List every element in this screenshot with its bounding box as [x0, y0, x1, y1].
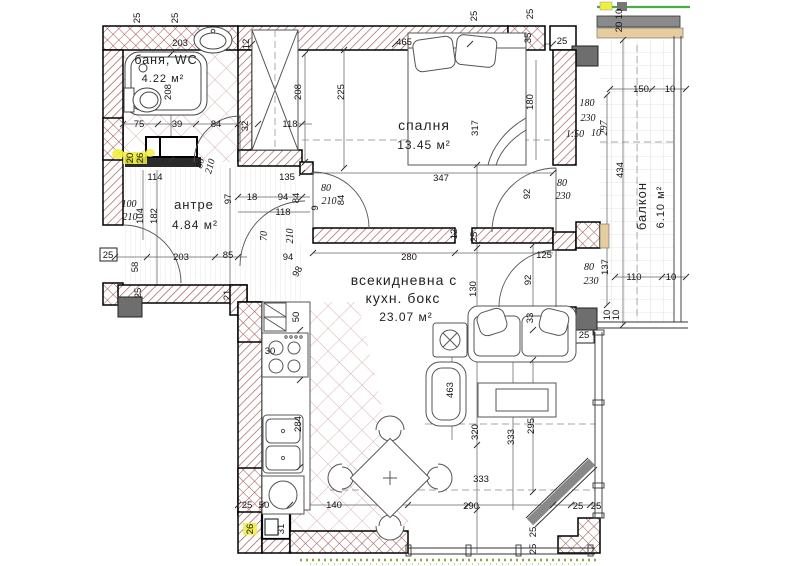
- dimension-label: 230: [556, 191, 571, 202]
- dimension-label: 94: [283, 252, 294, 263]
- dimension-label: 84: [291, 193, 302, 204]
- parapet-top-tan: [597, 28, 683, 38]
- hallway-label: антре: [174, 197, 214, 212]
- dimension-label: 180: [525, 94, 536, 110]
- dimension-label: 320: [470, 424, 481, 440]
- dimension-label: 295: [526, 418, 537, 434]
- bedroom-area: 13.45 м²: [397, 138, 451, 152]
- dimension-label: 10: [614, 9, 625, 20]
- dimension-label: 434: [615, 162, 626, 178]
- pillow: [412, 35, 456, 72]
- dimension-label: 92: [522, 189, 533, 200]
- dimension-label: 225: [336, 84, 347, 100]
- dimension-label: 84: [336, 195, 347, 206]
- living-area: 23.07 м²: [379, 310, 433, 324]
- dimension-label: 25: [579, 330, 590, 341]
- dimension-label: 118: [275, 207, 290, 218]
- dimension-label: 80: [321, 183, 331, 194]
- dimension-label: 150: [633, 84, 649, 95]
- dimension-label: 32: [240, 121, 251, 132]
- bathroom-label: баня, WC: [134, 53, 197, 67]
- parapet-top-bar: [597, 16, 680, 27]
- dimension-label: 182: [149, 208, 160, 224]
- dimension-label: 25: [573, 501, 584, 512]
- balcony-end-column: [576, 308, 597, 330]
- dimension-label: 208: [293, 84, 304, 100]
- dimension-label: 25: [469, 232, 480, 243]
- dimension-label: 104: [135, 208, 146, 224]
- dimension-label: 463: [445, 382, 456, 398]
- dimension-label: 135: [279, 172, 295, 183]
- dimension-label: 35: [523, 33, 534, 44]
- balcony-area: 6.10 м²: [655, 186, 667, 229]
- exterior-stair: [526, 458, 597, 527]
- dimension-label: 210: [285, 229, 296, 244]
- dimension-label: 125: [536, 250, 552, 261]
- dimension-label: 25: [242, 500, 253, 511]
- hallway-area: 4.84 м²: [172, 218, 218, 232]
- bathroom-area: 4.22 м²: [142, 73, 185, 85]
- dimension-label: 12: [449, 229, 460, 240]
- dimension-label: 25: [133, 288, 144, 299]
- dimension-label: 50: [291, 312, 302, 323]
- dimension-label: 84: [211, 119, 222, 130]
- dimension-label: 31: [276, 524, 287, 535]
- dimension-label: 12: [241, 39, 252, 50]
- living-label-1: всекидневна с: [351, 272, 458, 288]
- dimension-label: 25: [525, 9, 536, 20]
- dimension-label: 25: [557, 36, 568, 47]
- dimension-label: 20: [614, 22, 625, 33]
- dimension-label: 137: [600, 259, 611, 275]
- dimension-label: 180: [580, 98, 595, 109]
- dimension-label: 18: [247, 192, 258, 203]
- dimension-label: 110: [626, 272, 641, 283]
- dimension-label: 94: [278, 192, 289, 203]
- floor-plan-canvas: баня, WC 4.22 м² спалня 13.45 м² антре 4…: [0, 0, 800, 566]
- dimension-label: 30: [265, 346, 276, 357]
- dimension-label: 284: [293, 416, 304, 432]
- dimension-label: 130: [468, 281, 479, 297]
- dimension-label: 203: [173, 252, 189, 263]
- dimension-label: 347: [433, 173, 449, 184]
- dimension-label: 25: [469, 11, 480, 22]
- yellow-mark: [600, 2, 612, 10]
- dimension-label: 10: [666, 272, 677, 283]
- dimension-label: 58: [130, 262, 141, 273]
- dimension-label: 333: [473, 474, 489, 485]
- dimension-label: 140: [326, 500, 342, 511]
- dimension-label: 25: [528, 544, 539, 555]
- dimension-label: 21: [222, 290, 233, 301]
- living-furniture: [426, 306, 597, 527]
- living-label-2: кухн. бокс: [366, 290, 441, 306]
- dimension-label: 26: [245, 524, 256, 535]
- dimension-label: 10: [611, 310, 622, 321]
- dimension-label: 465: [396, 37, 412, 48]
- dimension-label: 297: [599, 120, 610, 136]
- dimension-label: 26: [135, 153, 146, 164]
- kitchen: [262, 302, 310, 514]
- floor-plan: баня, WC 4.22 м² спалня 13.45 м² антре 4…: [0, 0, 800, 566]
- dimension-label: 80: [557, 178, 567, 189]
- dimension-label: 230: [581, 113, 596, 124]
- dimension-label: 210: [322, 196, 337, 207]
- dimension-label: 80: [584, 262, 594, 273]
- dimension-label: 290: [463, 501, 479, 512]
- dimension-label: 1:50: [566, 129, 584, 140]
- dimension-label: 50: [259, 500, 270, 511]
- dimension-label: 118: [282, 119, 297, 130]
- east-window: [595, 332, 602, 518]
- dimension-label: 25: [170, 13, 181, 24]
- dimension-label: 25: [528, 527, 539, 538]
- dimension-label: 97: [223, 194, 234, 205]
- bedroom-label: спалня: [398, 117, 450, 133]
- dimension-label: 85: [223, 250, 234, 261]
- duct-shaft-2: [160, 137, 197, 157]
- dimension-label: 25: [103, 250, 114, 261]
- dimension-label: 39: [172, 119, 183, 130]
- dimension-label: 280: [401, 252, 417, 263]
- pillow: [455, 34, 498, 68]
- balcony-label: балкон: [634, 182, 649, 230]
- dimension-label: 75: [134, 119, 145, 130]
- dimension-label: 317: [470, 120, 481, 136]
- dimension-label: 114: [147, 172, 162, 183]
- dimension-label: 25: [591, 501, 602, 512]
- dimension-label: 92: [523, 275, 534, 286]
- dimension-label: 25: [132, 13, 143, 24]
- dimension-label: 203: [172, 38, 188, 49]
- parapet-tan: [600, 224, 609, 248]
- yellow-highlight: [112, 149, 124, 159]
- dimension-label: 208: [163, 84, 174, 100]
- dimension-label: 10: [665, 84, 676, 95]
- dimension-label: 333: [506, 429, 517, 445]
- entrance-column: [118, 297, 142, 317]
- dimension-label: 230: [584, 276, 599, 287]
- wardrobe: [252, 30, 298, 150]
- dimension-label: 33: [525, 313, 536, 324]
- dimension-label: 9: [310, 205, 321, 210]
- dimension-label: 70: [259, 231, 270, 241]
